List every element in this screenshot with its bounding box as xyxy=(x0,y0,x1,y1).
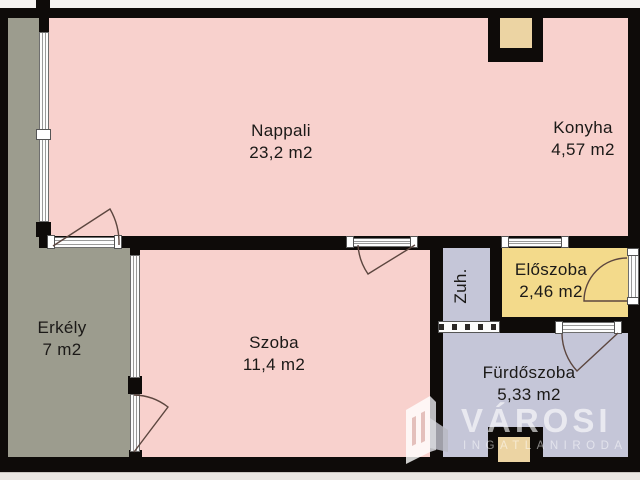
label-zuhanyzo: Zuh. xyxy=(450,268,472,303)
room-area: 4,57 m2 xyxy=(551,139,615,161)
door-jamb xyxy=(627,297,639,305)
room-name: Erkély xyxy=(37,317,86,339)
shaft-top-fill xyxy=(500,18,532,48)
door-jamb xyxy=(627,248,639,256)
label-nappali: Nappali 23,2 m2 xyxy=(249,120,313,164)
wall-stub xyxy=(36,0,50,8)
watermark-brand: VÁROSI xyxy=(461,402,612,440)
room-area: 23,2 m2 xyxy=(249,142,313,164)
room-area: 11,4 m2 xyxy=(243,354,305,376)
label-furdoszoba: Fürdőszoba 5,33 m2 xyxy=(483,362,576,406)
window-szoba-erkely xyxy=(130,255,140,378)
door-jamb xyxy=(555,321,563,334)
window-mullion xyxy=(36,129,51,140)
label-eloszoba: Előszoba 2,46 m2 xyxy=(515,259,587,303)
door-nappali-szoba xyxy=(348,238,418,247)
room-erkely-upper xyxy=(8,18,39,457)
opening-konyha-eloszoba xyxy=(503,238,568,247)
door-eloszoba-furdoszoba xyxy=(557,322,622,333)
door-nappali-erkely xyxy=(50,237,120,248)
door-jamb xyxy=(561,236,569,248)
door-erkely-szoba xyxy=(130,394,140,452)
door-jamb xyxy=(410,236,418,248)
room-area: 2,46 m2 xyxy=(515,281,587,303)
room-name: Fürdőszoba xyxy=(483,362,576,384)
wall-stub xyxy=(128,376,142,394)
window-nappali-erkely xyxy=(39,32,49,222)
room-name: Konyha xyxy=(551,117,615,139)
room-name: Nappali xyxy=(249,120,313,142)
door-jamb xyxy=(346,236,354,248)
door-jamb xyxy=(614,321,622,334)
door-jamb xyxy=(114,235,122,249)
background-strip xyxy=(0,472,640,480)
room-name: Zuh. xyxy=(450,268,472,303)
label-erkely: Erkély 7 m2 xyxy=(37,317,86,361)
watermark-subtitle: INGATLANIRODA xyxy=(463,440,628,452)
door-jamb xyxy=(501,236,509,248)
room-name: Szoba xyxy=(243,332,305,354)
room-area: 7 m2 xyxy=(37,339,86,361)
door-jamb xyxy=(47,235,55,249)
label-szoba: Szoba 11,4 m2 xyxy=(243,332,305,376)
opening-zuh-furdoszoba-dashed xyxy=(438,321,500,333)
room-name: Előszoba xyxy=(515,259,587,281)
label-konyha: Konyha 4,57 m2 xyxy=(551,117,615,161)
floorplan-image: Nappali 23,2 m2 Konyha 4,57 m2 Erkély 7 … xyxy=(0,0,640,480)
